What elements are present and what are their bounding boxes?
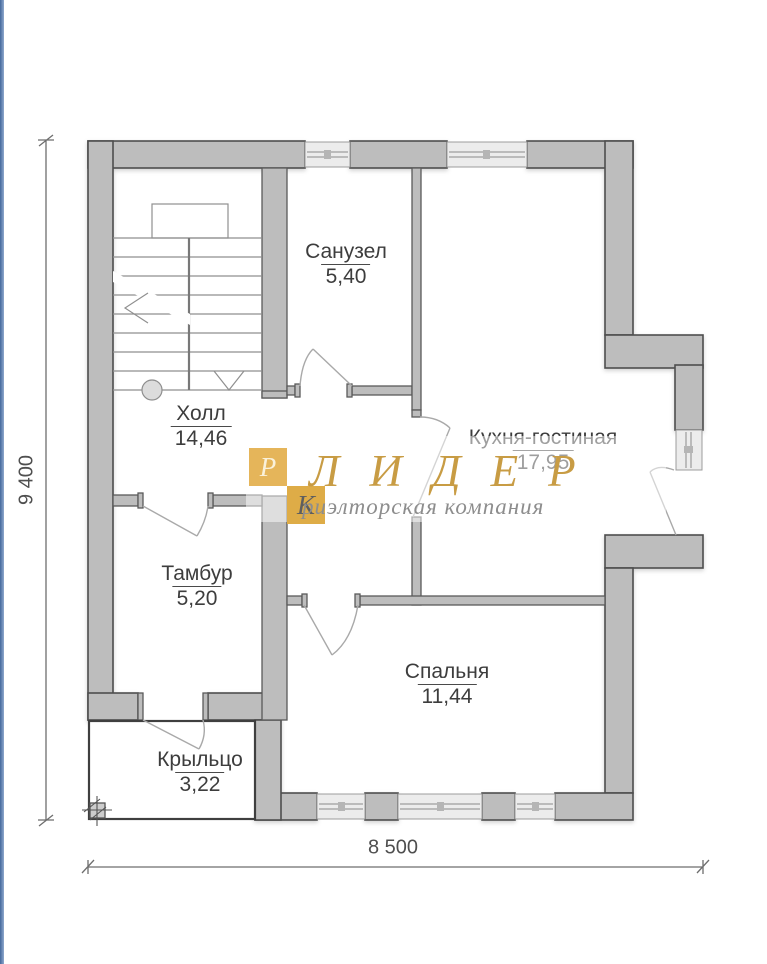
room-label-tambur: Тамбур 5,20: [161, 562, 232, 610]
room-name: Тамбур: [161, 562, 232, 586]
floor-plan-page: Санузел 5,40 Холл 14,46 Кухня-гостиная 1…: [0, 0, 767, 964]
dimension-label-horizontal: 8 500: [368, 837, 418, 860]
room-label-porch: Крыльцо 3,22: [157, 748, 243, 796]
room-name: Крыльцо: [157, 748, 243, 772]
room-area: 11,44: [417, 684, 476, 709]
staircase: [113, 204, 262, 400]
brand-name: ЛИДЕР: [309, 445, 606, 497]
room-area: 5,40: [322, 264, 371, 289]
room-name: Холл: [171, 402, 232, 426]
brand-tagline: риэлторская компания: [302, 494, 544, 520]
room-area: 5,20: [173, 586, 222, 611]
room-area: 14,46: [171, 426, 232, 451]
logo-monogram-top: Р: [249, 448, 287, 486]
room-label-hall: Холл 14,46: [171, 402, 232, 450]
room-label-bedroom: Спальня 11,44: [405, 660, 489, 708]
room-area: 3,22: [176, 772, 225, 797]
room-label-sanuzel: Санузел 5,40: [305, 240, 387, 288]
room-name: Спальня: [405, 660, 489, 684]
dimension-label-vertical: 9 400: [16, 455, 39, 505]
room-name: Санузел: [305, 240, 387, 264]
